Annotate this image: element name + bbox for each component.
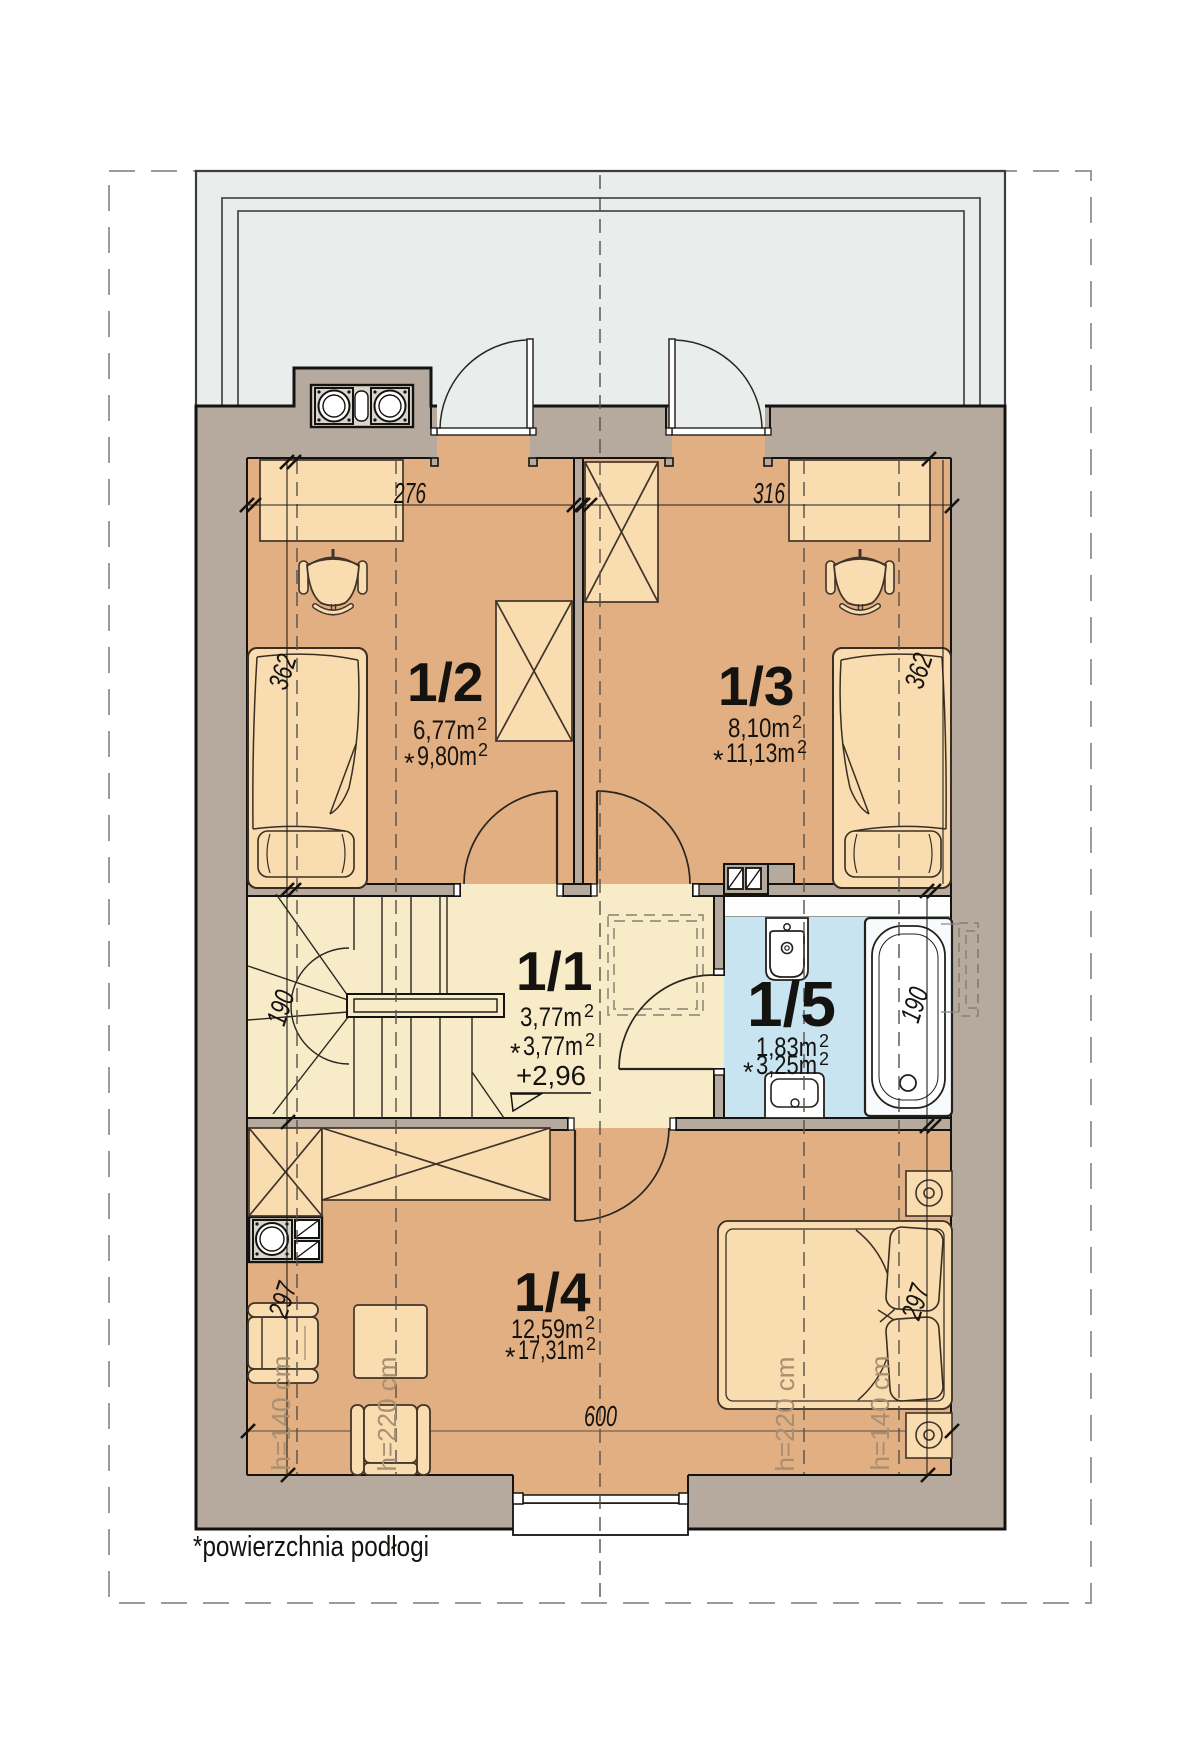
svg-text:2: 2 [586,1334,596,1354]
svg-text:1/2: 1/2 [407,651,483,713]
svg-text:2: 2 [819,1031,829,1051]
svg-text:2: 2 [797,737,807,757]
svg-text:h=220 cm: h=220 cm [770,1357,800,1472]
svg-text:600: 600 [584,1401,617,1433]
svg-text:1/5: 1/5 [747,968,836,1040]
svg-text:2: 2 [792,712,802,732]
svg-text:h=220 cm: h=220 cm [372,1357,402,1472]
svg-text:+2,96: +2,96 [516,1060,586,1091]
svg-text:17,31m: 17,31m [518,1335,584,1365]
svg-text:316: 316 [753,478,786,510]
svg-text:*: * [743,1057,754,1087]
svg-text:*: * [713,745,724,775]
svg-text:h=140 cm: h=140 cm [266,1356,296,1471]
svg-text:2: 2 [585,1030,595,1050]
svg-text:3,25m: 3,25m [756,1050,817,1080]
svg-text:11,13m: 11,13m [726,738,795,768]
svg-text:2: 2 [819,1049,829,1069]
svg-text:2: 2 [477,714,487,734]
svg-text:1/3: 1/3 [718,655,794,717]
svg-text:*: * [505,1342,516,1372]
svg-text:2: 2 [585,1313,595,1333]
svg-text:1/1: 1/1 [516,940,592,1002]
svg-text:*powierzchnia podłogi: *powierzchnia podłogi [193,1531,429,1563]
svg-text:h=140 cm: h=140 cm [865,1356,895,1471]
svg-text:2: 2 [584,1001,594,1021]
svg-text:2: 2 [478,740,488,760]
svg-text:*: * [404,748,415,778]
svg-text:276: 276 [393,478,426,510]
svg-text:3,77m: 3,77m [520,1002,582,1032]
svg-text:3,77m: 3,77m [523,1031,583,1061]
svg-text:9,80m: 9,80m [417,741,477,771]
